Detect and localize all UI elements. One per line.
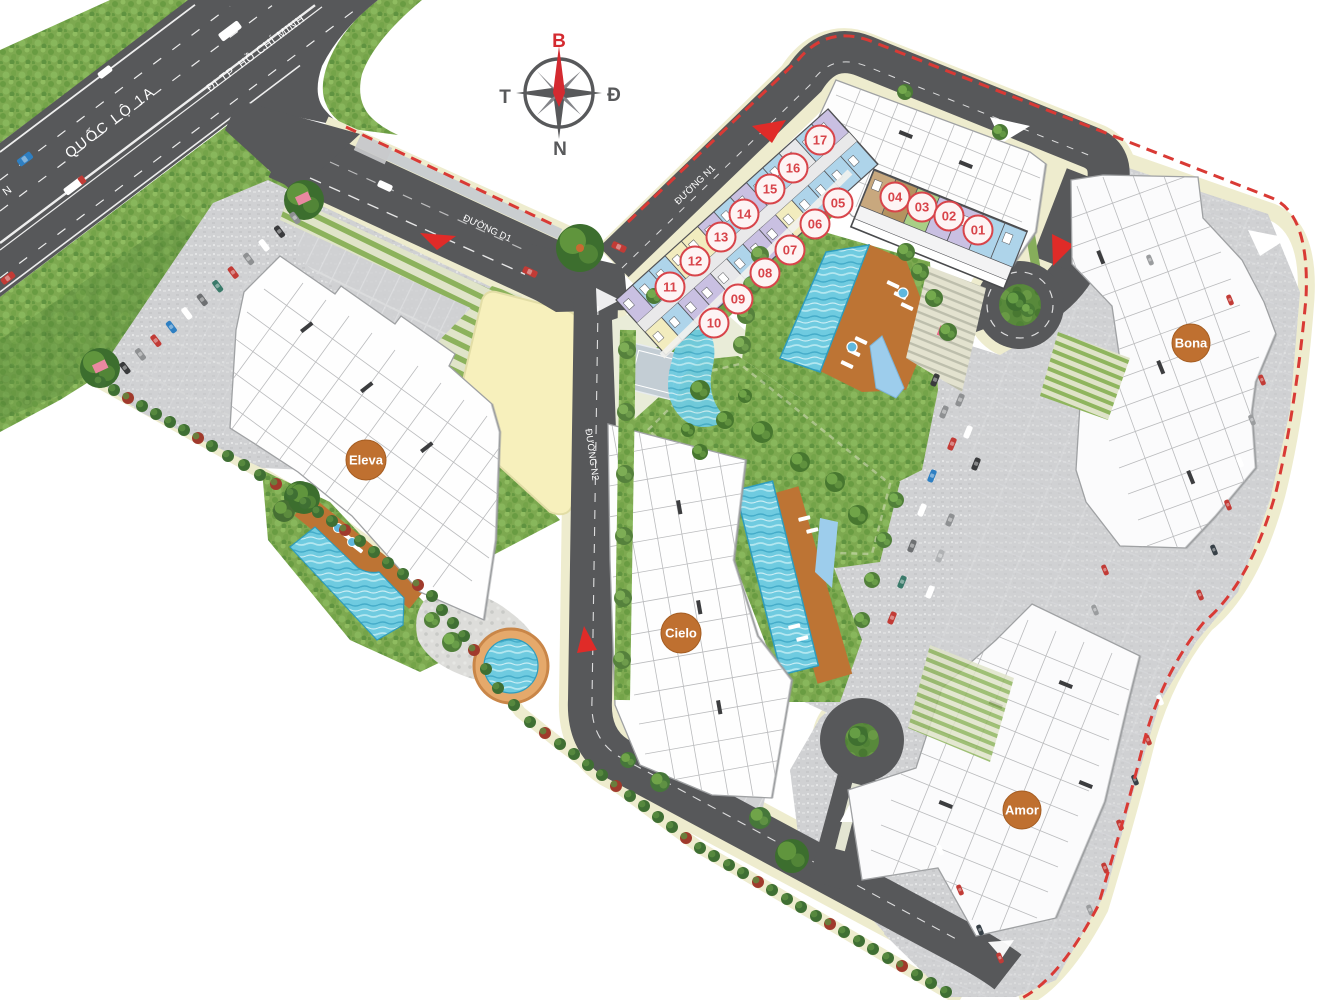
svg-text:01: 01 [971,223,985,238]
svg-text:14: 14 [737,207,752,222]
svg-text:Bona: Bona [1175,336,1208,351]
svg-text:13: 13 [714,230,728,245]
svg-text:B: B [552,31,566,52]
svg-text:11: 11 [663,280,677,295]
svg-text:16: 16 [786,161,800,176]
svg-text:17: 17 [813,133,827,148]
svg-text:N: N [553,139,567,160]
svg-text:02: 02 [942,209,956,224]
svg-text:05: 05 [831,196,845,211]
svg-text:T: T [499,87,511,108]
svg-text:03: 03 [915,200,929,215]
svg-text:07: 07 [783,243,797,258]
svg-text:09: 09 [731,292,745,307]
svg-text:04: 04 [888,190,903,205]
svg-text:06: 06 [808,217,822,232]
svg-text:Đ: Đ [607,85,621,106]
svg-text:12: 12 [688,254,702,269]
svg-text:Amor: Amor [1005,803,1039,818]
svg-text:Eleva: Eleva [349,453,384,468]
svg-text:Cielo: Cielo [665,626,697,641]
svg-text:08: 08 [758,266,772,281]
svg-text:15: 15 [763,182,777,197]
svg-text:10: 10 [707,316,721,331]
